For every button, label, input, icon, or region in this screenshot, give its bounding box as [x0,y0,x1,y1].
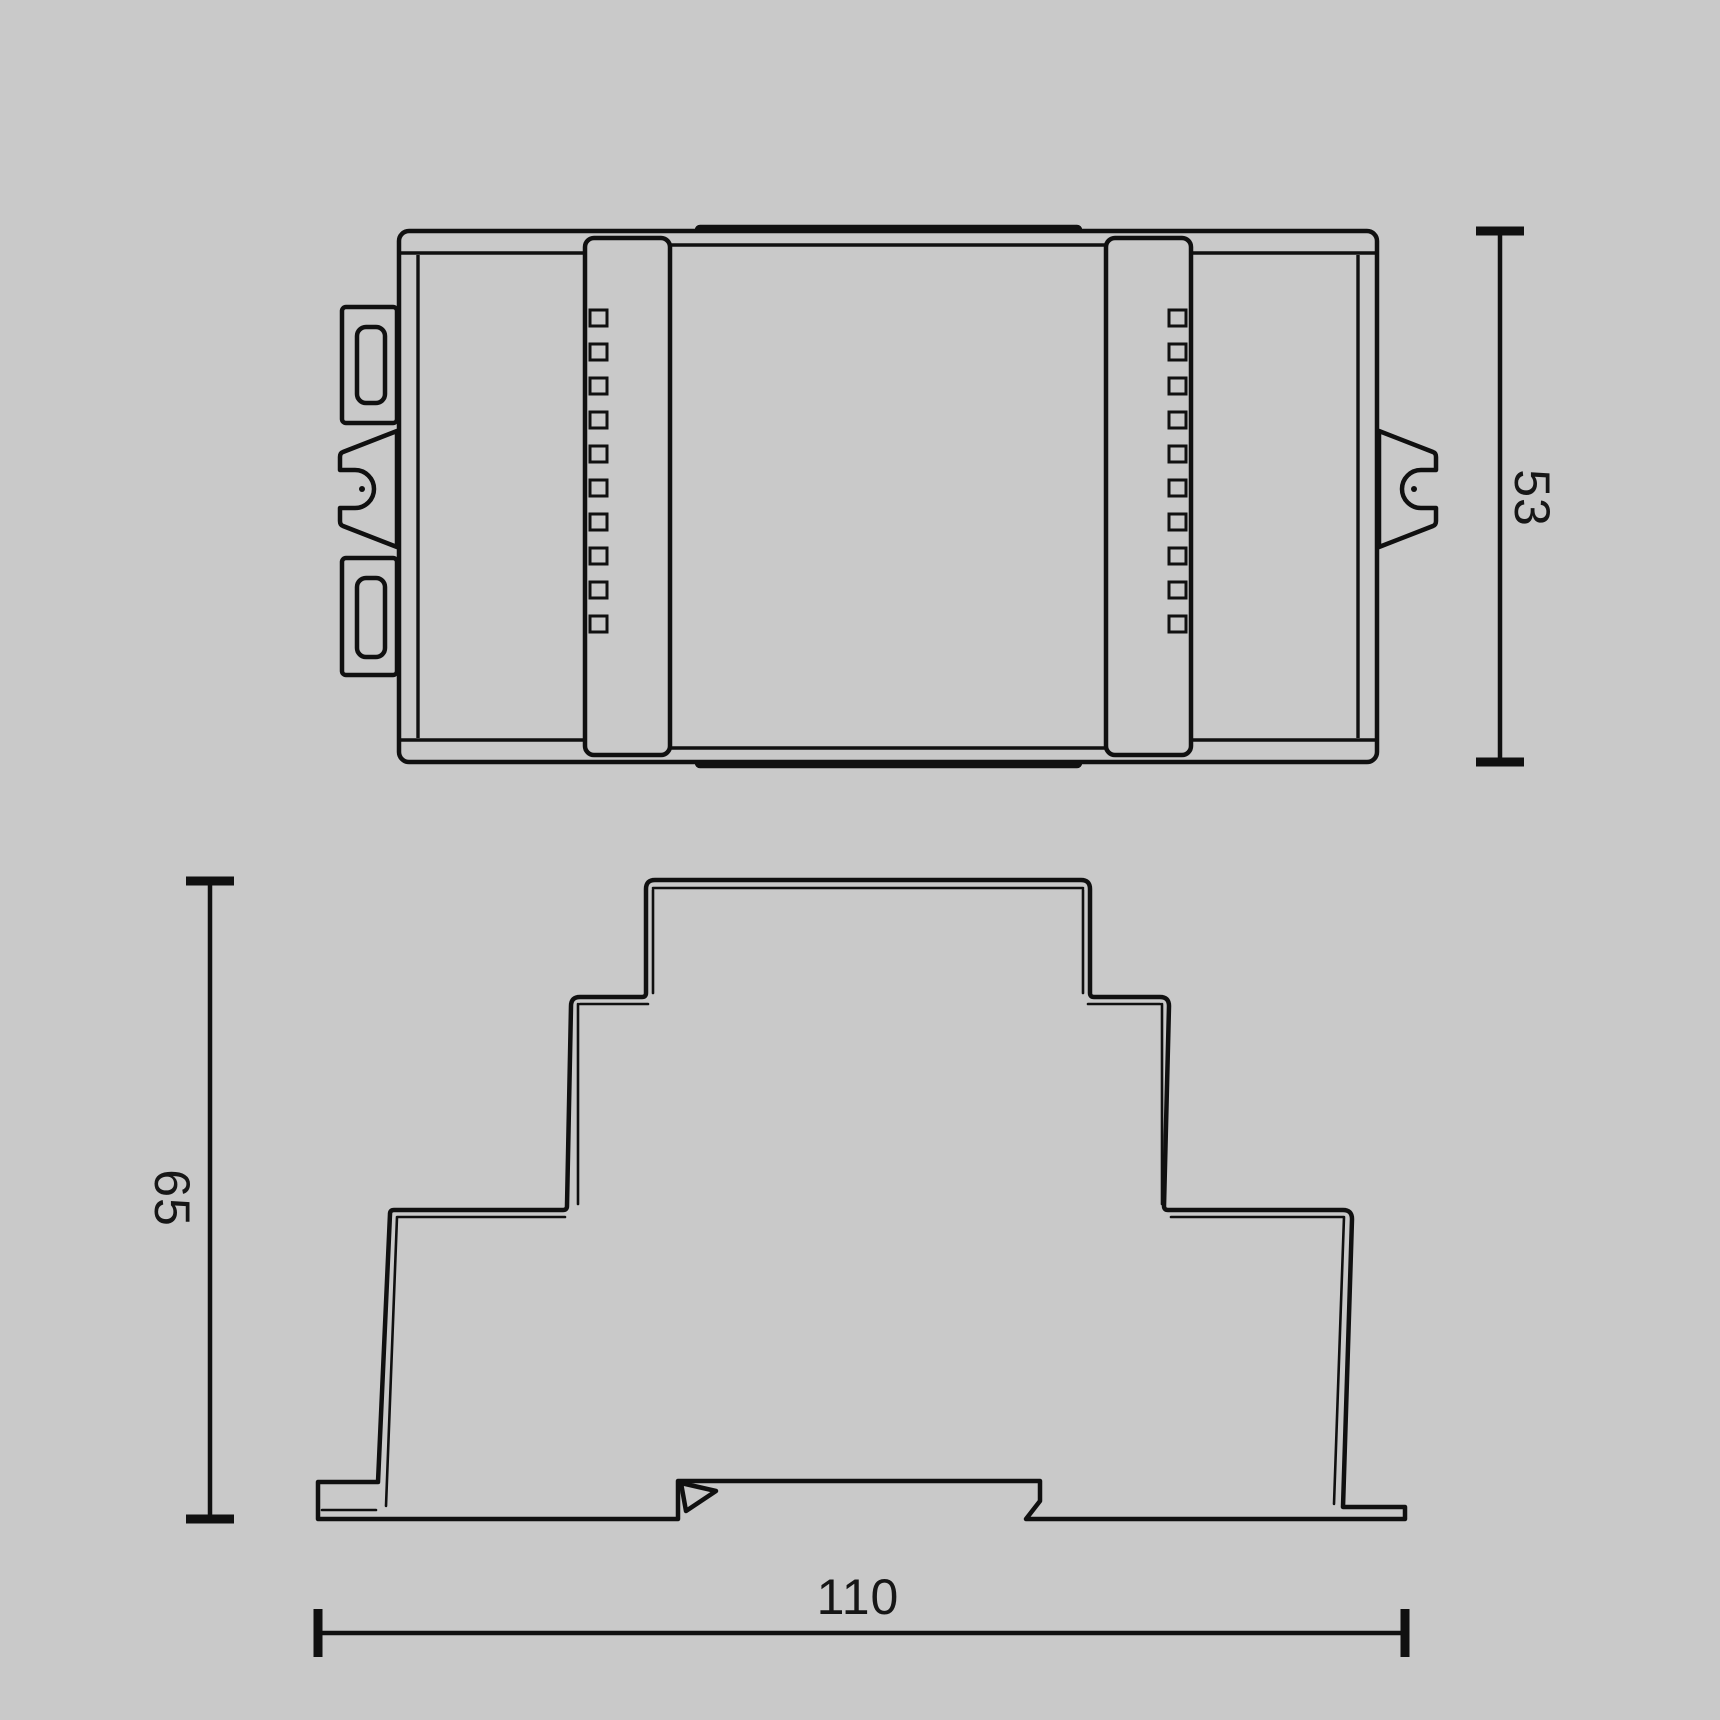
dimension-label-110: 110 [817,1569,900,1625]
front-view [318,880,1405,1519]
tab-slot [357,578,385,657]
tab-outline [340,431,397,547]
tab-slot [357,327,385,403]
mounting-tab-middle-left [340,431,397,547]
din-latch-tooth [681,1483,716,1511]
technical-drawing-svg: 53 65 110 [0,0,1720,1720]
mounting-tab-bottom-left [342,558,397,675]
top-view [340,227,1436,766]
drill-center-mark [359,486,365,492]
dimension-65: 65 [144,881,234,1519]
drawing-canvas: 53 65 110 [0,0,1720,1720]
mounting-tab-top-left [342,307,397,423]
dimension-label-65: 65 [144,1169,200,1227]
tab-outline [1379,431,1436,547]
body-outline [399,231,1377,762]
mounting-tab-right [1379,431,1436,547]
profile-outline [318,880,1405,1519]
drill-center-mark [1411,486,1417,492]
dimension-110: 110 [318,1569,1405,1657]
dimension-53: 53 [1476,231,1560,762]
dimension-label-53: 53 [1504,469,1560,527]
